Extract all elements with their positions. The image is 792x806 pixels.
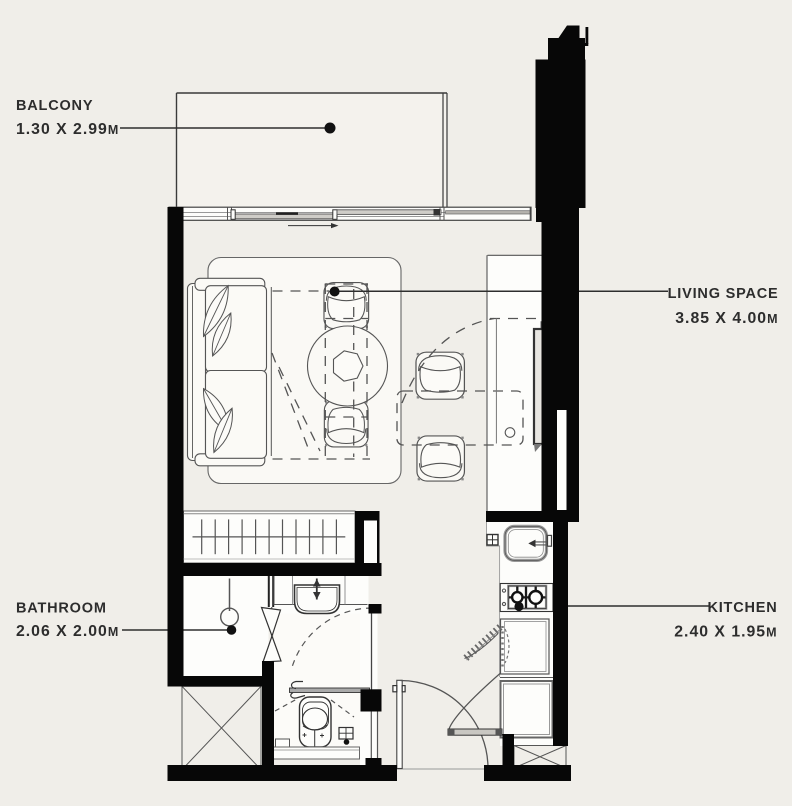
svg-text:2.40 X 1.95M: 2.40 X 1.95M — [674, 624, 777, 641]
svg-text:BATHROOM: BATHROOM — [16, 601, 107, 617]
svg-text:1.30 X 2.99M: 1.30 X 2.99M — [16, 121, 119, 138]
svg-text:KITCHEN: KITCHEN — [707, 600, 777, 616]
svg-text:LIVING SPACE: LIVING SPACE — [668, 286, 779, 302]
svg-text:BALCONY: BALCONY — [16, 98, 93, 114]
svg-text:2.06 X 2.00M: 2.06 X 2.00M — [16, 623, 119, 640]
svg-text:3.85 X 4.00M: 3.85 X 4.00M — [675, 310, 778, 327]
